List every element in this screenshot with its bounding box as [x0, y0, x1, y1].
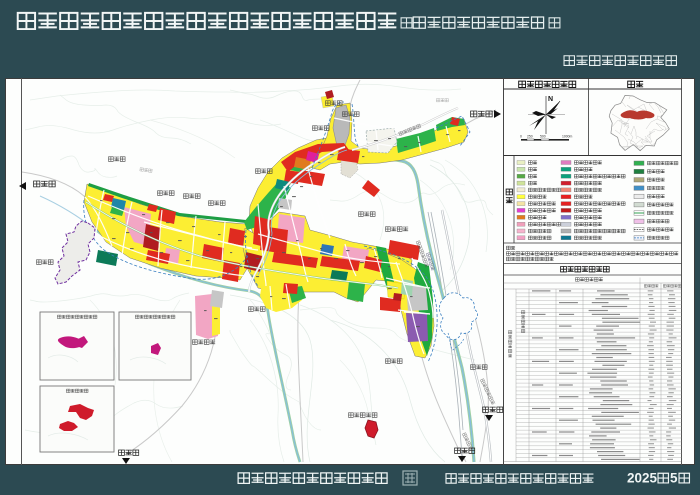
svg-text:N: N	[548, 96, 553, 103]
svg-text:2025: 2025	[627, 471, 658, 486]
svg-text:5: 5	[670, 471, 678, 486]
svg-text:250: 250	[527, 135, 533, 139]
svg-text:1000m: 1000m	[562, 135, 573, 139]
svg-text:500: 500	[540, 135, 546, 139]
svg-text:0: 0	[520, 135, 522, 139]
